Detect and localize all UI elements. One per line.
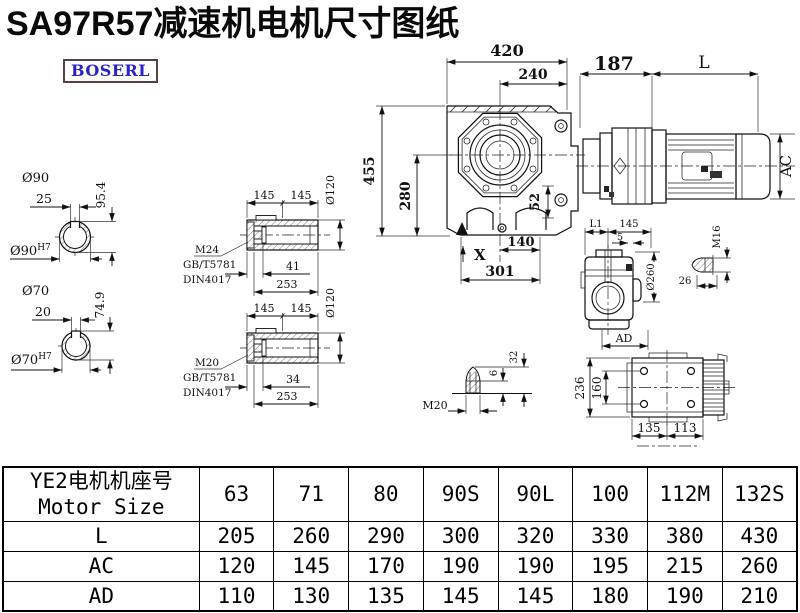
dim-AD: AD	[615, 332, 633, 345]
dimension-sheet: { "page": { "title": "SA97R57减速机电机尺寸图纸",…	[0, 0, 800, 613]
thread-m24: M24	[195, 244, 219, 256]
col-header: 80	[349, 467, 424, 521]
dim-key-20: 20	[35, 304, 51, 319]
col-header: 100	[573, 467, 648, 521]
dim-145-a: 145	[254, 302, 275, 315]
cell: 190	[423, 551, 498, 581]
dim-depth-95-4: 95.4	[94, 181, 108, 208]
cell: 320	[498, 521, 573, 551]
col-header: 63	[199, 467, 274, 521]
dim-L: L	[698, 53, 709, 73]
bolt-detail-m16: M16 26	[679, 226, 731, 289]
table-row-AC: AC 120 145 170 190 190 195 215 260	[3, 551, 797, 581]
row-label: AD	[3, 581, 199, 611]
standard-din: DIN4017	[183, 387, 231, 399]
cell: 330	[573, 521, 648, 551]
dim-253: 253	[277, 390, 298, 403]
cell: 135	[349, 581, 424, 611]
cell: 190	[498, 551, 573, 581]
motor-size-header: YE2电机机座号 Motor Size	[3, 467, 199, 521]
motor-size-header-en: Motor Size	[4, 494, 199, 520]
technical-drawing: 420 240 455 280 52 X 140 301 187 L AC	[0, 0, 800, 462]
hollow-shaft-detail-m20: 145 145 Ø120 M20 GB/T5781 DIN4017 34 253	[183, 288, 345, 408]
standard-gb: GB/T5781	[183, 259, 236, 271]
dim-145-a: 145	[254, 189, 275, 202]
shaft-section-90: Ø90 25 95.4 Ø90H7	[10, 171, 116, 266]
dim-32: 32	[509, 351, 520, 364]
dim-52: 52	[528, 193, 543, 211]
row-label: L	[3, 521, 199, 551]
dim-dia-260: Ø260	[646, 263, 657, 290]
dim-240: 240	[518, 67, 547, 83]
gearbox-front-view: 420 240 455 280 52 X 140 301	[362, 41, 585, 284]
cell: 380	[647, 521, 722, 551]
torque-arm-marker	[456, 222, 468, 235]
dim-L1: L1	[589, 219, 602, 230]
cell: 300	[423, 521, 498, 551]
dim-26: 26	[679, 276, 692, 287]
dim-dia-90: Ø90	[22, 171, 49, 186]
table-row-AD: AD 110 130 135 145 145 180 190 210	[3, 581, 797, 611]
dim-145-b: 145	[291, 189, 312, 202]
dim-bore-70h7: Ø70H7	[11, 352, 52, 368]
dim-x-mark: X	[474, 246, 486, 264]
row-label: AC	[3, 551, 199, 581]
col-header: 71	[274, 467, 349, 521]
cell: 130	[274, 581, 349, 611]
shaft-section-70: Ø70 20 74.9 Ø70H7	[11, 284, 114, 374]
cell: 145	[423, 581, 498, 611]
bore-fit: H7	[38, 352, 52, 362]
dim-280: 280	[398, 181, 414, 210]
dim-41: 41	[286, 260, 300, 273]
thread-m16: M16	[712, 226, 723, 249]
motor-side-view: 187 L AC	[576, 53, 795, 204]
dim-5: 5	[617, 232, 623, 243]
dim-dia-70: Ø70	[22, 284, 49, 299]
cell: 145	[274, 551, 349, 581]
cell: 145	[498, 581, 573, 611]
dim-bore-90h7: Ø90H7	[10, 243, 51, 259]
thread-m20: M20	[422, 399, 447, 412]
bolt-detail-m20: M20 6 32	[422, 351, 532, 414]
col-header: 90L	[498, 467, 573, 521]
standard-din: DIN4017	[183, 274, 231, 286]
dim-420: 420	[490, 41, 523, 60]
bore-fit: H7	[37, 243, 51, 253]
cell: 120	[199, 551, 274, 581]
motor-dimension-table: YE2电机机座号 Motor Size 63 71 80 90S 90L 100…	[2, 466, 798, 612]
dim-253: 253	[277, 278, 298, 291]
cell: 180	[573, 581, 648, 611]
cell: 195	[573, 551, 648, 581]
cell: 290	[349, 521, 424, 551]
cell: 170	[349, 551, 424, 581]
dim-301: 301	[485, 264, 514, 280]
dim-187: 187	[594, 53, 634, 75]
thread-m20: M20	[195, 357, 219, 369]
dim-135: 135	[638, 421, 661, 435]
dim-113: 113	[674, 421, 697, 435]
dim-145-b: 145	[291, 302, 312, 315]
gearbox-output-side-view: L1 145 5 Ø260 AD	[581, 219, 660, 350]
dim-dia-120: Ø120	[324, 175, 337, 205]
dim-dia-120: Ø120	[324, 288, 337, 318]
table-row-L: L 205 260 290 300 320 330 380 430	[3, 521, 797, 551]
col-header: 132S	[722, 467, 797, 521]
dim-34: 34	[286, 373, 300, 386]
motor-size-header-cn: YE2电机机座号	[4, 468, 199, 494]
hollow-shaft-detail-m24: 145 145 Ø120 M24 GB/T5781 DIN4017 41 253	[183, 175, 345, 296]
standard-gb: GB/T5781	[183, 372, 236, 384]
cell: 205	[199, 521, 274, 551]
cell: 190	[647, 581, 722, 611]
dim-455: 455	[362, 156, 378, 185]
dim-AC: AC	[777, 155, 795, 178]
cell: 215	[647, 551, 722, 581]
dim-160: 160	[590, 377, 604, 400]
bore-value: Ø70	[11, 353, 38, 368]
cell: 260	[274, 521, 349, 551]
mounting-top-view: 236 160 135 113	[573, 350, 737, 446]
dim-236: 236	[573, 377, 587, 400]
cell: 210	[722, 581, 797, 611]
cell: 110	[199, 581, 274, 611]
bore-value: Ø90	[10, 244, 37, 259]
cell: 260	[722, 551, 797, 581]
dim-140: 140	[507, 235, 534, 250]
cell: 430	[722, 521, 797, 551]
dim-145: 145	[619, 219, 638, 230]
col-header: 90S	[423, 467, 498, 521]
table-header-row: YE2电机机座号 Motor Size 63 71 80 90S 90L 100…	[3, 467, 797, 521]
col-header: 112M	[647, 467, 722, 521]
dim-depth-74-9: 74.9	[93, 292, 107, 319]
dim-key-25: 25	[36, 191, 52, 206]
dim-6: 6	[489, 370, 500, 376]
